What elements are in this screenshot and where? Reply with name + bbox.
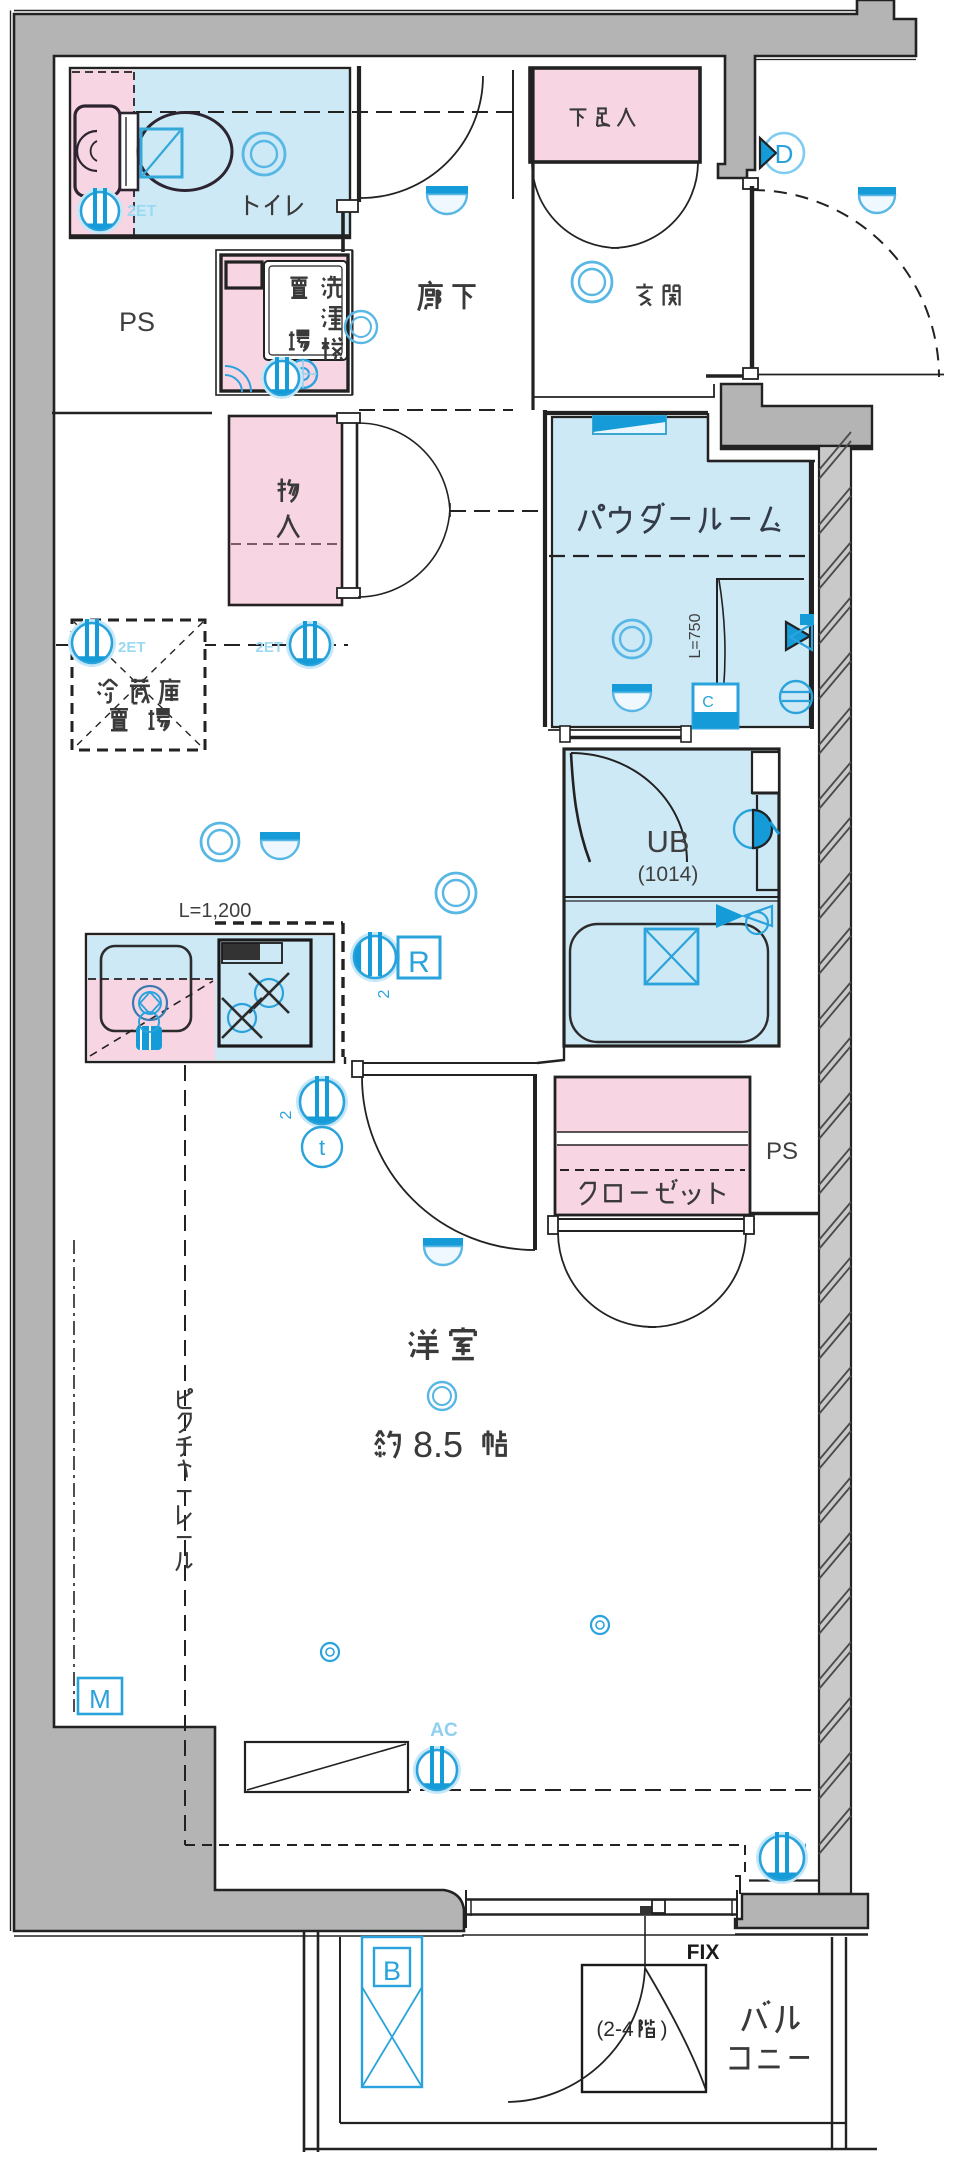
svg-text:C: C xyxy=(702,694,714,711)
svg-text:(1014): (1014) xyxy=(638,863,699,886)
svg-text:B: B xyxy=(383,1956,401,1986)
svg-text:L=750: L=750 xyxy=(687,613,704,658)
svg-text:UB: UB xyxy=(646,824,689,859)
svg-text:M: M xyxy=(89,1684,111,1714)
svg-text:R: R xyxy=(408,946,430,979)
svg-text:PS: PS xyxy=(119,307,155,337)
svg-text:2ET: 2ET xyxy=(255,639,283,656)
svg-text:L=1,200: L=1,200 xyxy=(179,900,252,922)
svg-text:): ) xyxy=(661,2018,668,2041)
svg-text:2ET: 2ET xyxy=(118,639,146,656)
svg-text:2: 2 xyxy=(278,1110,295,1119)
svg-text:PS: PS xyxy=(766,1138,798,1165)
svg-text:2ET: 2ET xyxy=(127,203,157,220)
svg-text:(2-4: (2-4 xyxy=(596,2018,634,2041)
svg-text:FIX: FIX xyxy=(687,1941,720,1964)
svg-text:D: D xyxy=(775,139,794,169)
svg-text:8.5: 8.5 xyxy=(413,1424,463,1465)
svg-text:2: 2 xyxy=(376,989,393,998)
svg-text:t: t xyxy=(319,1135,325,1160)
svg-text:AC: AC xyxy=(430,1720,458,1741)
